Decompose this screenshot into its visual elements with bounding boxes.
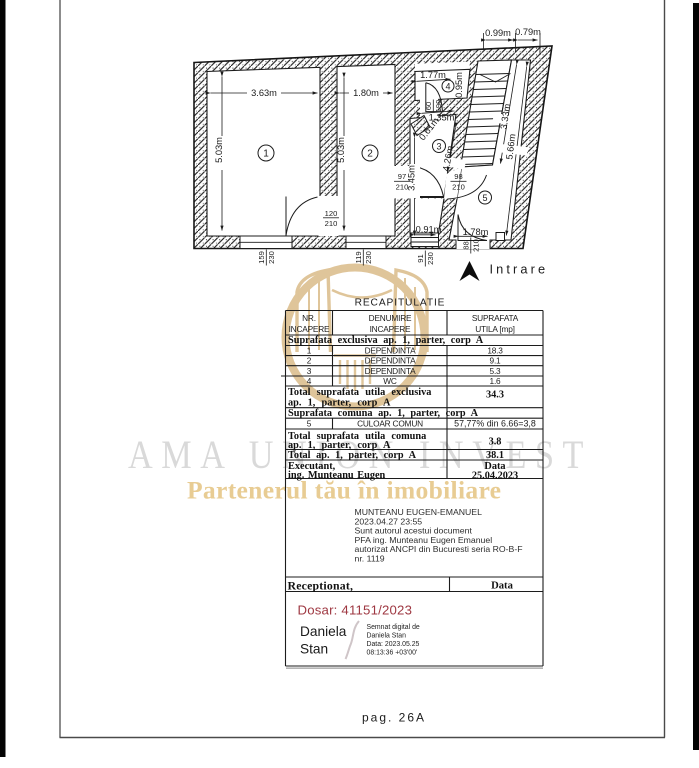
svg-text:Daniela Stan: Daniela Stan [367,633,407,640]
svg-text:230: 230 [426,252,435,265]
svg-text:5.3: 5.3 [490,366,502,376]
svg-text:60: 60 [424,102,433,110]
svg-text:INCAPERE: INCAPERE [370,324,411,334]
svg-text:SUPRAFATA: SUPRAFATA [472,313,519,323]
svg-text:NR.: NR. [302,313,316,323]
svg-text:119: 119 [354,251,363,263]
svg-text:5: 5 [307,419,312,429]
svg-text:5.03m: 5.03m [214,137,224,163]
svg-text:Receptionat,: Receptionat, [288,579,354,593]
svg-text:230: 230 [267,251,276,264]
svg-text:Daniela: Daniela [300,624,347,639]
svg-text:DEPENDINTA: DEPENDINTA [365,366,417,376]
svg-text:0.79m: 0.79m [515,27,541,37]
svg-text:18.3: 18.3 [487,346,503,356]
svg-text:25.04.2023: 25.04.2023 [472,470,518,481]
svg-text:ing. Munteanu Eugen: ing. Munteanu Eugen [288,470,386,481]
svg-text:120: 120 [325,209,338,218]
svg-text:210: 210 [452,183,465,192]
svg-text:RECAPITULATIE: RECAPITULATIE [355,298,446,309]
svg-text:210: 210 [472,239,481,252]
svg-text:0.95m: 0.95m [454,72,464,98]
svg-text:88: 88 [462,241,471,249]
svg-text:97: 97 [398,172,406,181]
svg-text:1.77m: 1.77m [420,70,446,80]
svg-text:230: 230 [364,251,373,264]
svg-text:Data: 2023.05.25: Data: 2023.05.25 [367,641,420,648]
svg-text:1.80m: 1.80m [353,88,379,98]
svg-text:nr. 1119: nr. 1119 [355,554,385,564]
svg-text:0.91m: 0.91m [416,225,442,235]
svg-text:57,77% din 6.66=3,8: 57,77% din 6.66=3,8 [454,419,536,429]
svg-text:0.99m: 0.99m [485,28,511,38]
svg-text:Intrare: Intrare [490,262,549,277]
svg-text:Suprafata comuna ap. 1, parter: Suprafata comuna ap. 1, parter, corp A [288,408,479,419]
svg-text:38.1: 38.1 [486,450,504,461]
svg-text:08:13:36 +03'00': 08:13:36 +03'00' [367,650,418,657]
svg-text:1.78m: 1.78m [463,227,489,237]
svg-text:34.3: 34.3 [486,390,504,401]
svg-text:5.03m: 5.03m [336,137,346,163]
svg-text:Dosar: 41151/2023: Dosar: 41151/2023 [298,603,413,618]
svg-text:5: 5 [482,193,487,203]
svg-text:4: 4 [307,376,312,386]
svg-text:Semnat digital de: Semnat digital de [367,624,420,631]
svg-text:3.63m: 3.63m [251,88,277,98]
svg-text:Total ap. 1, parter, corp A: Total ap. 1, parter, corp A [288,450,417,461]
svg-text:Data: Data [491,581,513,592]
svg-text:1.6: 1.6 [490,376,502,386]
svg-text:159: 159 [257,251,266,264]
svg-text:DEPENDINTA: DEPENDINTA [365,346,417,356]
svg-text:1: 1 [307,346,312,356]
svg-text:98: 98 [454,172,462,181]
svg-text:190: 190 [434,100,443,113]
svg-text:ap. 1, parter, corp A: ap. 1, parter, corp A [288,397,391,408]
svg-text:pag. 26A: pag. 26A [362,711,426,725]
svg-text:2: 2 [307,356,312,366]
svg-text:WC: WC [383,376,397,386]
svg-text:INCAPERE: INCAPERE [289,324,330,334]
svg-text:Suprafata exclusiva ap. 1, par: Suprafata exclusiva ap. 1, parter, corp … [288,335,484,346]
svg-text:91: 91 [416,254,425,262]
svg-text:DEPENDINTA: DEPENDINTA [365,356,417,366]
svg-text:3.8: 3.8 [489,437,502,448]
svg-text:2: 2 [367,149,373,160]
svg-text:210: 210 [325,219,338,228]
svg-text:3: 3 [307,366,312,376]
svg-text:CULOAR COMUN: CULOAR COMUN [357,419,423,429]
svg-text:4: 4 [445,81,450,91]
svg-text:Stan: Stan [300,642,328,657]
svg-text:UTILA [mp]: UTILA [mp] [475,324,515,334]
svg-text:3: 3 [436,141,441,151]
svg-text:DENUMIRE: DENUMIRE [369,313,412,323]
svg-text:210: 210 [396,183,409,192]
svg-text:9.1: 9.1 [490,356,502,366]
svg-text:1: 1 [263,149,269,160]
